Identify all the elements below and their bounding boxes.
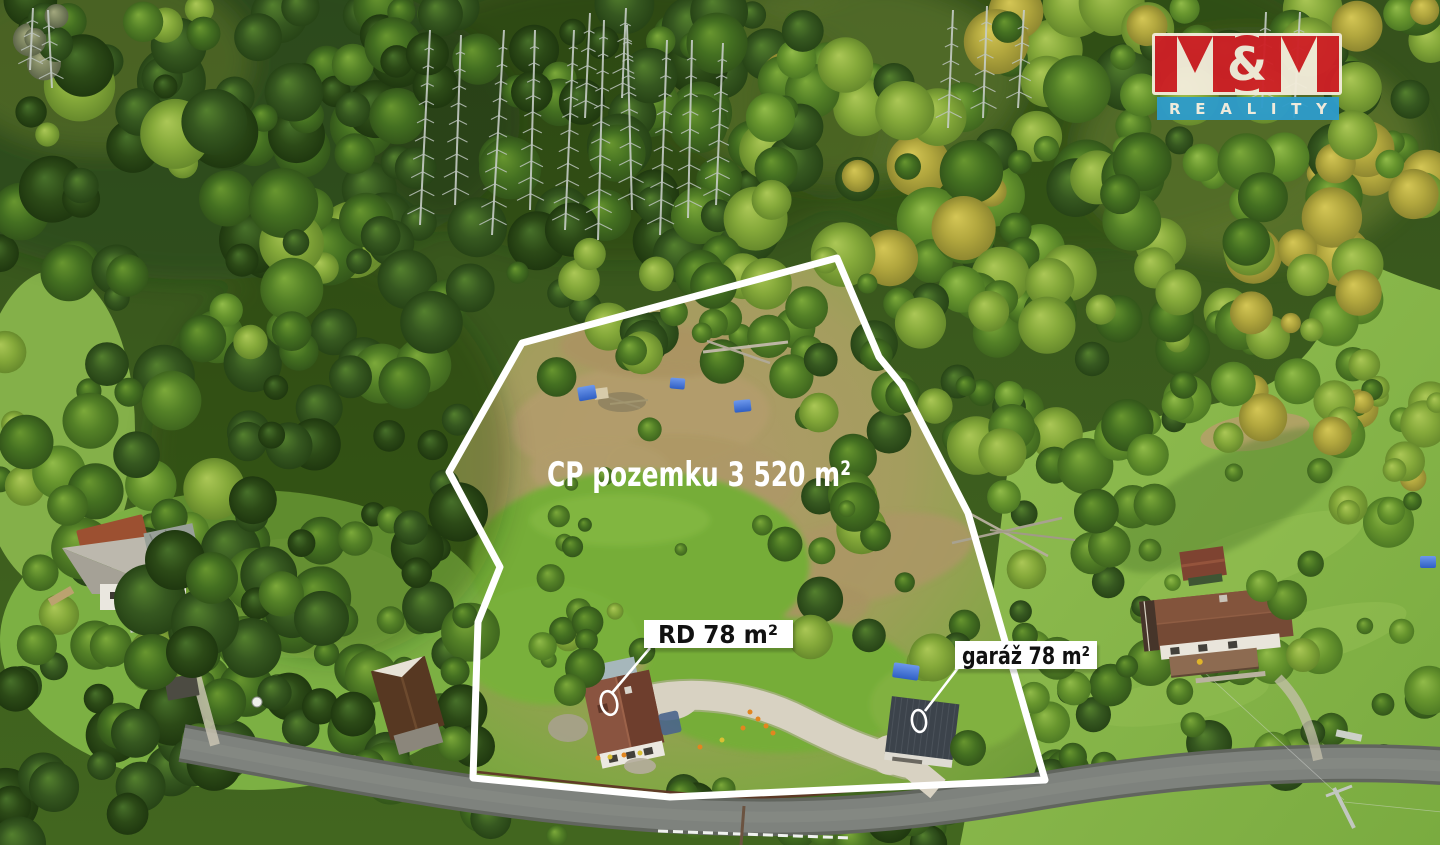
garage-label: garáž 78 m² [962, 642, 1090, 670]
logo-ampersand: & [1227, 37, 1267, 91]
brand-logo: & REALITY [1152, 33, 1342, 120]
parasol [252, 697, 262, 707]
house-label: RD 78 m² [658, 620, 778, 649]
area-label: CP pozemku 3 520 m² [547, 455, 851, 495]
aerial-photo: CP pozemku 3 520 m² RD 78 m² garáž 78 m² [0, 0, 1440, 845]
